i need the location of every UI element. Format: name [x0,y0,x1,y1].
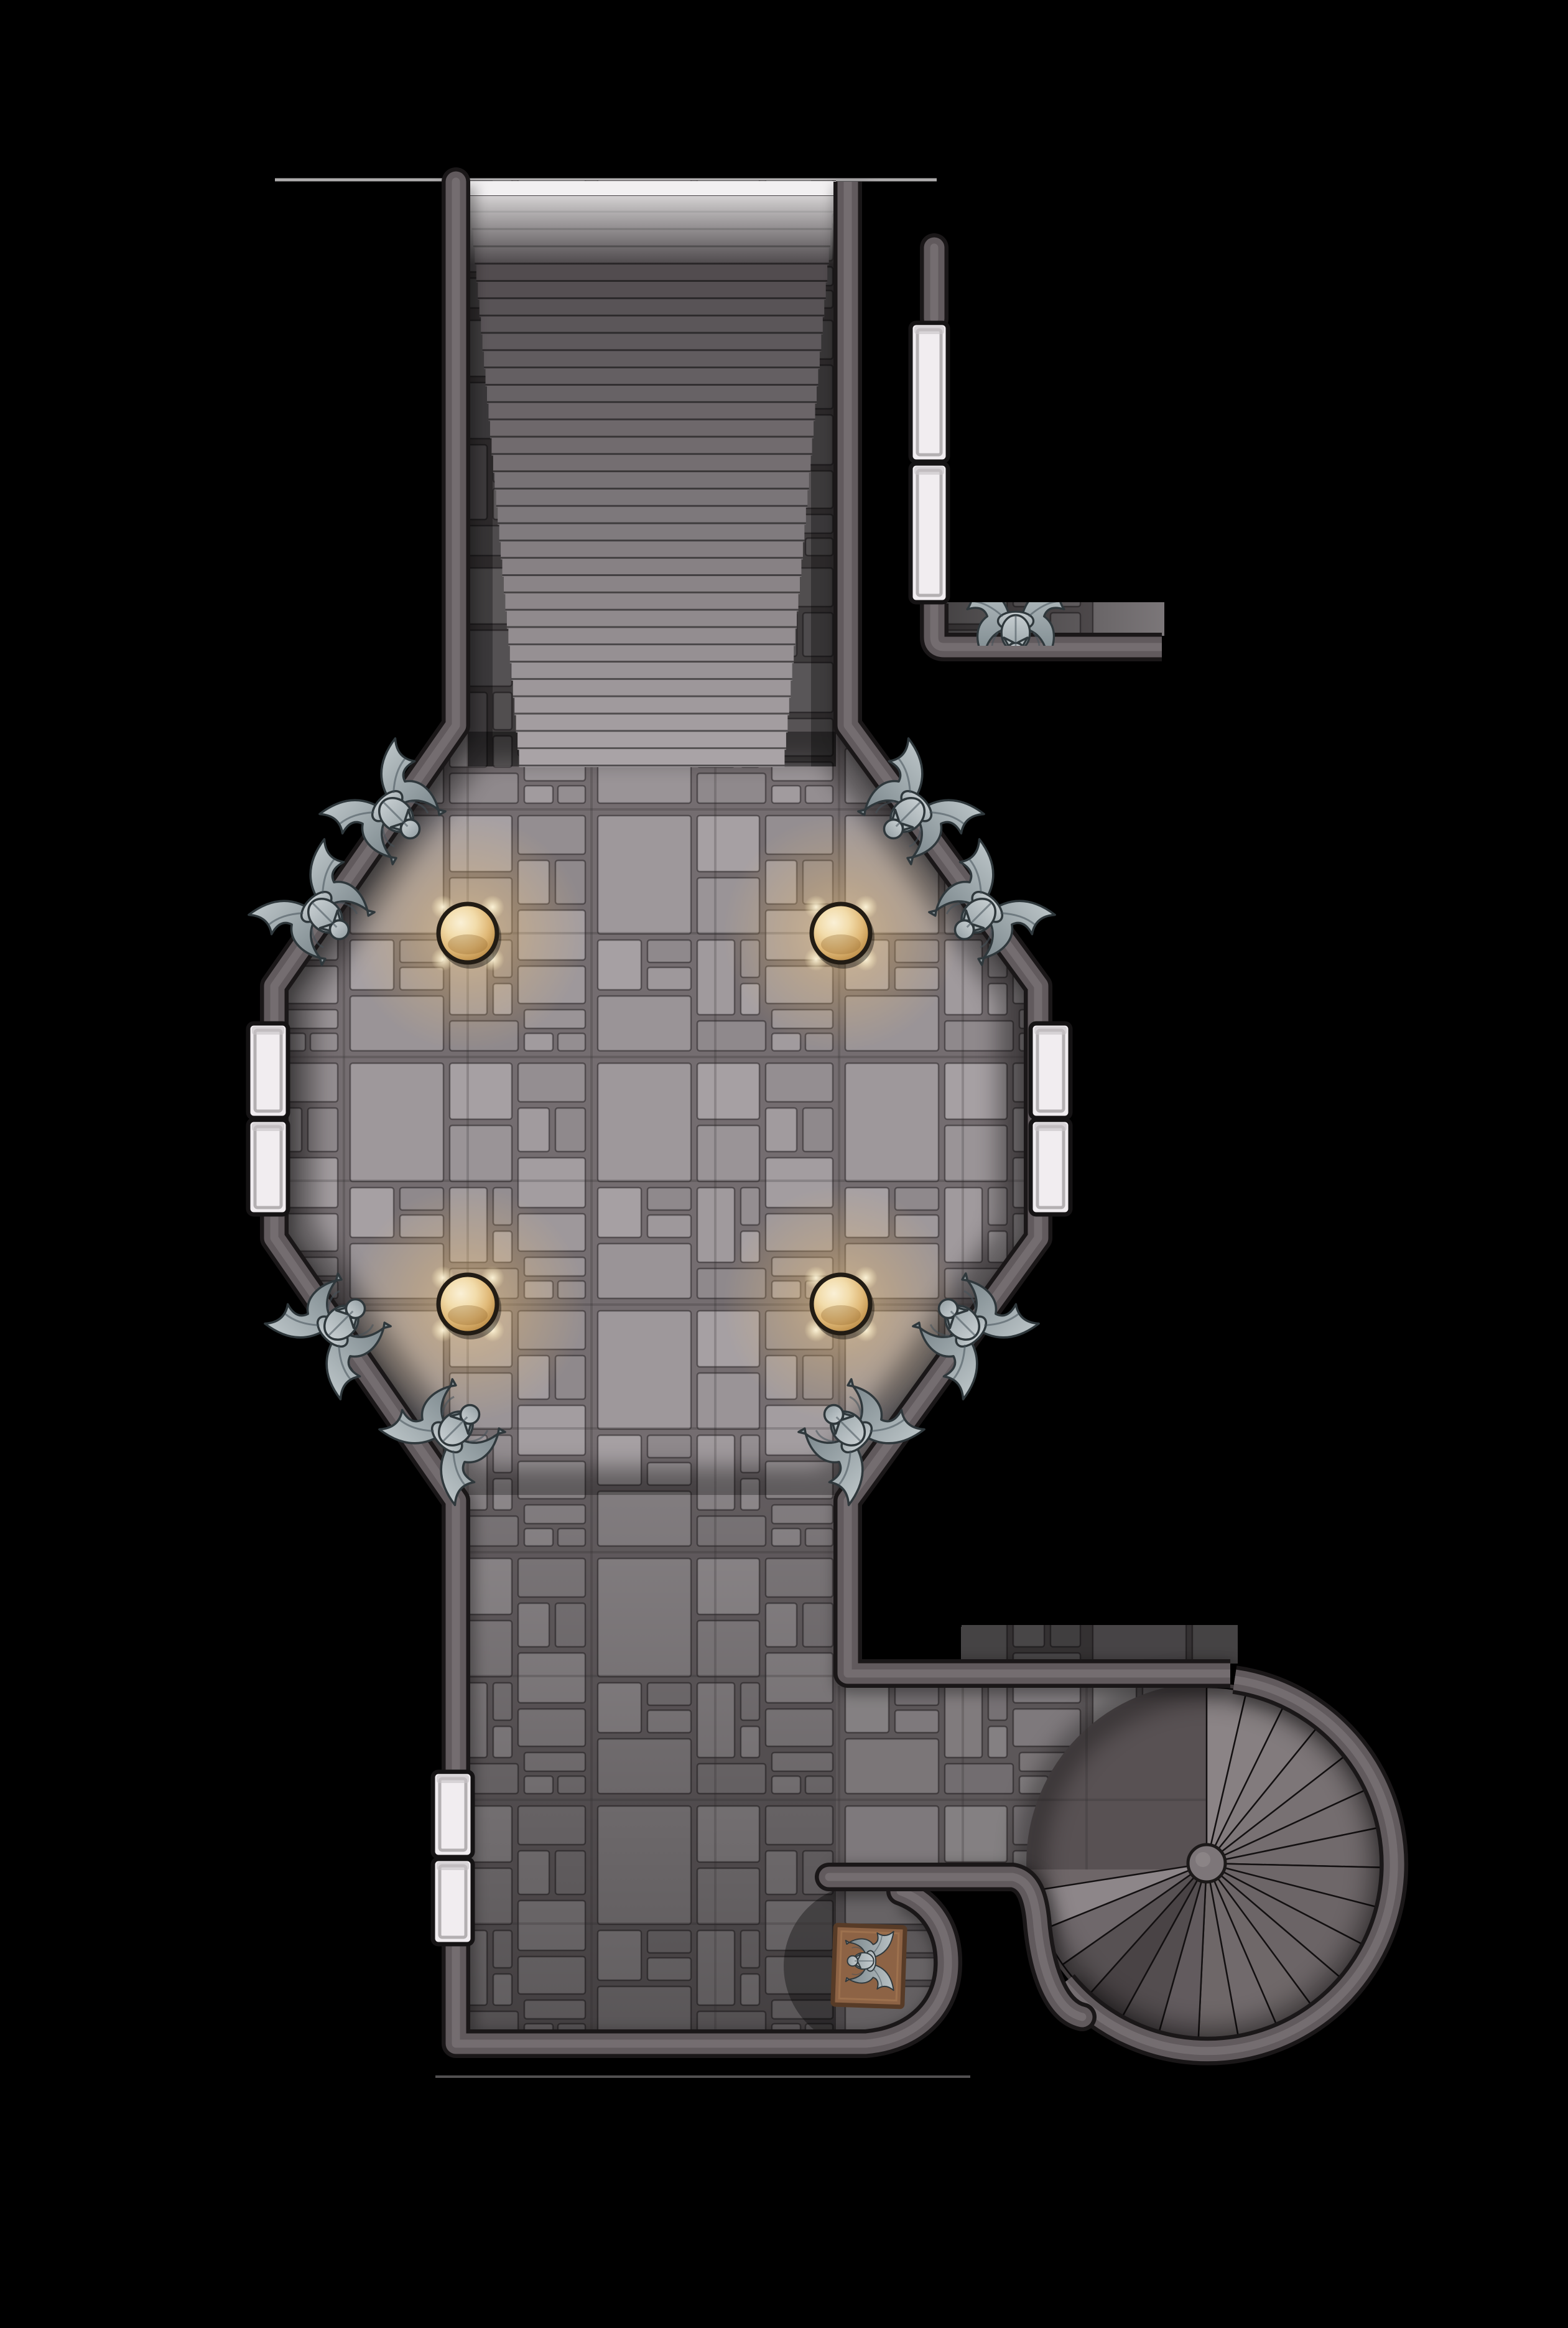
stair-tread [490,421,814,439]
stair-tread-edge [514,713,789,715]
stair-tread-edge [481,332,823,334]
stair-tread [519,749,785,767]
stair-top-landing [468,181,836,197]
stair-tread [504,576,800,594]
stair-tread [494,472,809,490]
stair-tread [488,403,815,421]
stair-tread-edge [503,574,802,576]
stair-tread [483,334,822,352]
lamp-sw [438,1275,501,1339]
stair-tread-edge [511,678,792,680]
stair-tread-edge [494,488,809,490]
stair-tread [508,628,795,646]
stair-tread [499,524,805,542]
stair-tread [480,299,825,317]
stair-tread [487,386,817,404]
stair-tread-edge [504,592,800,594]
grand-staircase [468,181,836,767]
stair-tread-edge [487,401,817,403]
stair-tread-edge [488,419,815,421]
dungeon-map [0,0,1568,2328]
stair-tread [481,317,823,335]
stair-tread-edge [490,435,814,437]
stair-tread [498,507,806,525]
stair-tread [486,368,819,386]
stair-tread [484,351,820,369]
stair-tread [503,559,802,577]
stair-light-fade [468,196,836,264]
stair-tread-edge [483,349,822,351]
stair-tread-edge [484,366,820,368]
stair-tread [496,490,808,508]
stair-tread-edge [513,696,791,697]
stair-tread [511,663,792,681]
door-leaf [1031,1023,1070,1118]
ne-corridor-walls [934,248,1162,647]
stair-tread-edge [505,609,798,611]
stair-tread [513,680,791,698]
north-east-corridor-doors [911,323,948,602]
stair-tread-edge [507,626,797,628]
stair-tread-edge [476,280,827,282]
door-leaf [433,1772,473,1857]
stair-tread-edge [498,523,806,524]
stair-tread-edge [519,765,785,766]
alcove-statue-group [833,1925,905,2007]
stair-tread-edge [480,315,825,317]
stair-tread [476,264,827,282]
stair-tread-edge [496,505,808,507]
lamp-se [812,1275,874,1339]
hall-east-double-door [1031,1023,1070,1214]
hall-west-double-door [248,1023,288,1214]
corridor-west-double-door [433,1772,473,1944]
door-leaf [248,1120,288,1214]
stair-tread-edge [510,661,794,663]
stair-tread-edge [499,539,805,541]
stair-tread-edge [501,557,803,559]
stair-tread-edge [517,747,786,749]
door-leaf [433,1859,473,1944]
lamp-ne [812,904,874,969]
door-leaf [248,1023,288,1118]
stair-tread [505,594,798,612]
stair-tread [510,645,794,663]
lamp-nw [438,904,501,969]
door-leaf [911,323,948,462]
stair-tread-edge [508,643,795,645]
stair-tread-edge [493,470,810,472]
stair-tread [516,715,788,733]
stair-tread [501,541,803,559]
stair-tread-edge [478,297,825,299]
stair-tread [517,732,786,750]
spiral-hub-highlight [1195,1852,1210,1867]
stair-tread [478,282,825,300]
stair-tread-edge [516,730,788,732]
stair-tread [514,697,789,715]
stair-tread [493,455,810,473]
stair-tread-edge [491,453,812,455]
map-canvas [0,0,1568,2328]
door-leaf [911,463,948,602]
door-leaf [1031,1120,1070,1214]
stair-tread [491,437,812,455]
stair-treads [470,195,833,767]
stair-tread-edge [486,384,819,386]
stair-tread [507,611,797,629]
